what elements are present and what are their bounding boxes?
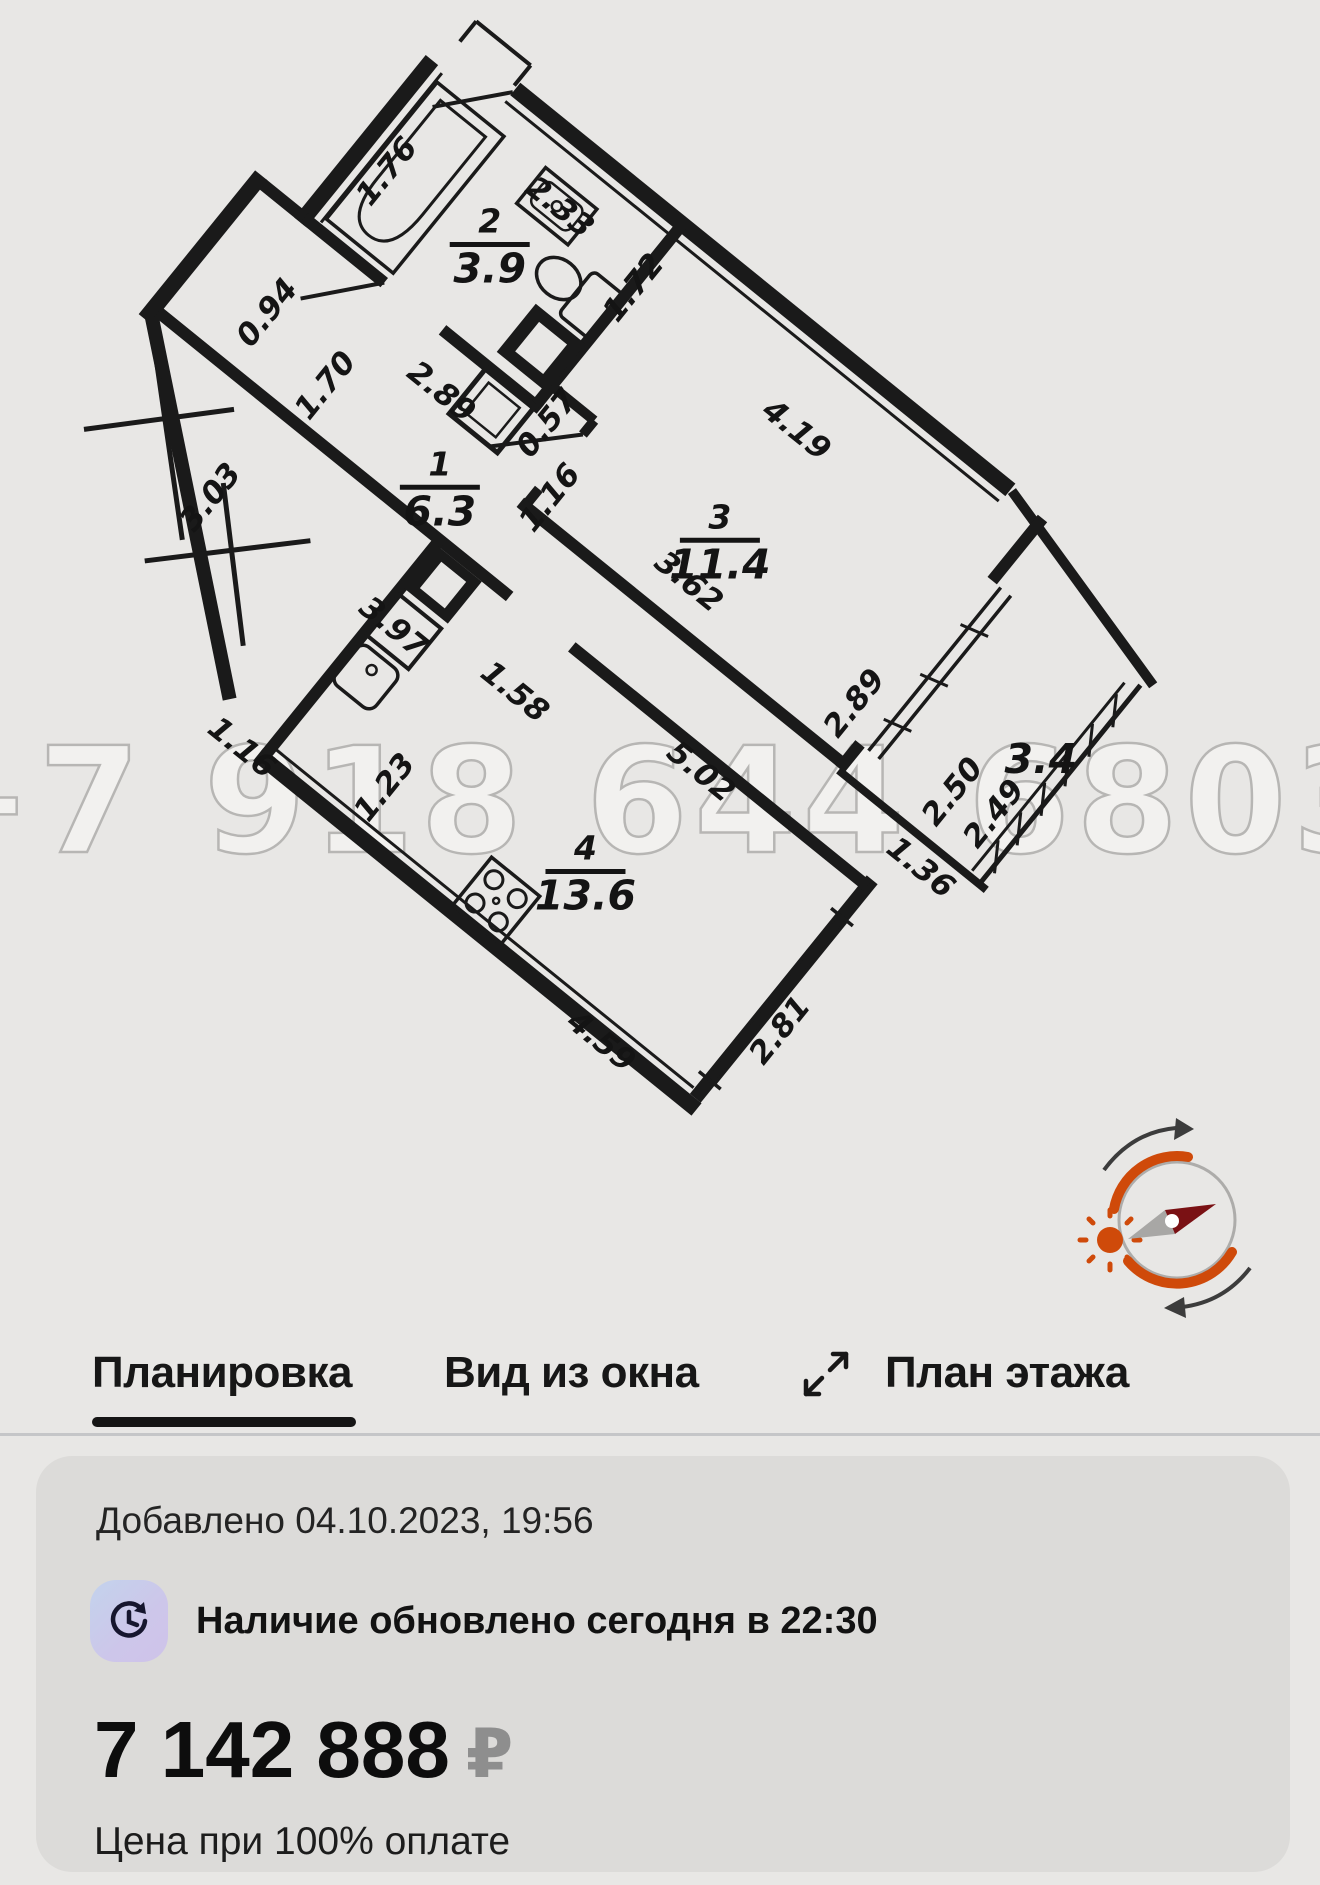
added-date-label: Добавлено 04.10.2023, 19:56 <box>96 1500 594 1542</box>
price-info-card: Добавлено 04.10.2023, 19:56 Наличие обно… <box>36 1456 1290 1872</box>
price-row: 7 142 888 ₽ <box>94 1704 513 1796</box>
availability-row: Наличие обновлено сегодня в 22:30 <box>90 1580 878 1662</box>
svg-text:4: 4 <box>573 829 597 868</box>
svg-text:1: 1 <box>428 444 451 483</box>
svg-text:3.9: 3.9 <box>453 245 526 293</box>
clock-refresh-icon <box>106 1598 152 1644</box>
room-label: 16.3 <box>400 444 480 535</box>
active-tab-underline <box>92 1417 356 1427</box>
tab-plan-etazha[interactable]: План этажа <box>885 1348 1129 1398</box>
watermark-phone: +7 918 644 6803 <box>0 716 1320 887</box>
svg-text:2: 2 <box>478 202 501 241</box>
svg-text:13.6: 13.6 <box>535 872 636 920</box>
dimension-label: 1.70 <box>287 344 363 426</box>
floor-plan-svg: +7 918 644 6803 <box>0 0 1320 1340</box>
sun-icon <box>1080 1210 1140 1270</box>
plan-labels: 1.762.330.941.702.890.571.161.724.193.62… <box>18 77 1168 1185</box>
availability-label: Наличие обновлено сегодня в 22:30 <box>196 1600 878 1643</box>
room-label: 23.9 <box>450 202 530 293</box>
listing-screen: +7 918 644 6803 <box>0 0 1320 1885</box>
compass-needle-icon <box>1128 1204 1216 1239</box>
ruble-sign: ₽ <box>466 1715 513 1794</box>
room-label: 311.4 <box>669 497 770 588</box>
svg-text:11.4: 11.4 <box>669 540 770 588</box>
floor-plan-image[interactable]: +7 918 644 6803 <box>0 0 1320 1340</box>
room-label: 3.4 <box>1004 735 1077 783</box>
svg-text:3: 3 <box>708 497 731 536</box>
price-value: 7 142 888 <box>94 1704 450 1796</box>
section-divider <box>0 1433 1320 1436</box>
dimension-label: 0.94 <box>229 272 305 354</box>
fullscreen-expand-icon[interactable] <box>800 1348 852 1400</box>
availability-icon-badge <box>90 1580 168 1662</box>
svg-text:6.3: 6.3 <box>404 487 477 535</box>
dimension-label: 2.89 <box>400 354 482 430</box>
dimension-label: 4.19 <box>755 391 838 468</box>
tab-planirovka[interactable]: Планировка <box>92 1348 352 1398</box>
price-note: Цена при 100% оплате <box>94 1820 510 1864</box>
compass-sun-widget[interactable] <box>1080 1118 1250 1318</box>
svg-text:3.4: 3.4 <box>1004 735 1077 783</box>
sun-arc-top <box>1114 1156 1188 1209</box>
floor-plan-drawing: 1.762.330.941.702.890.571.161.724.193.62… <box>0 0 1212 1186</box>
tab-vid-iz-okna[interactable]: Вид из окна <box>444 1348 699 1398</box>
